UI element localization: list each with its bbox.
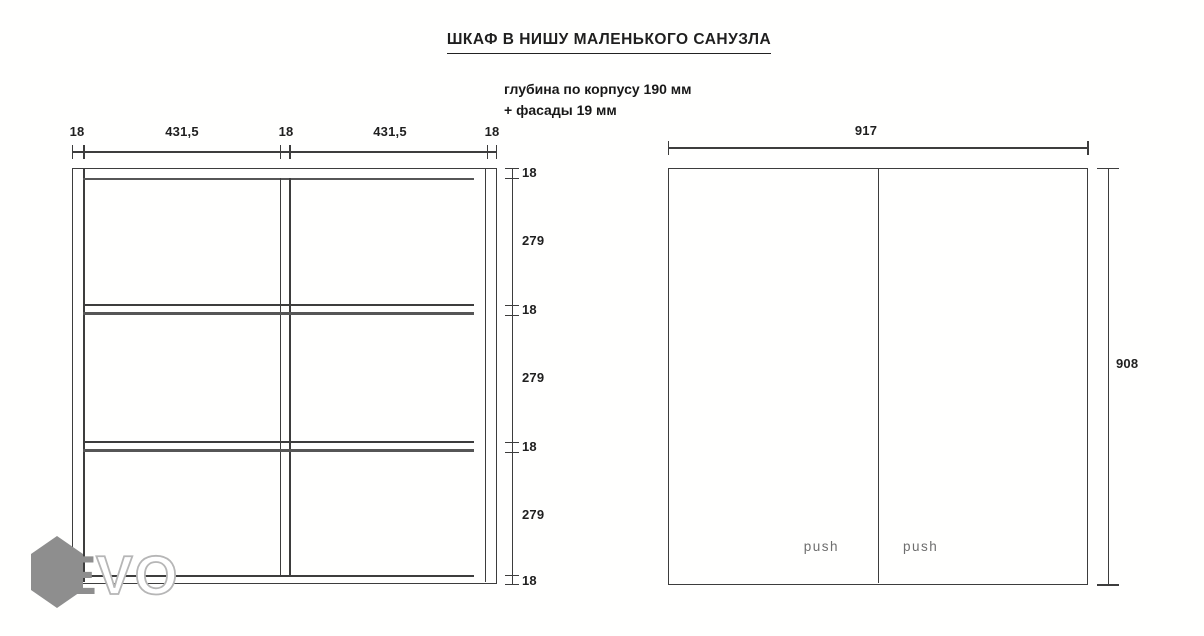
dim-label: 18 bbox=[522, 573, 537, 589]
dim-label: 431,5 bbox=[373, 124, 407, 140]
left-panel-inner-line bbox=[83, 169, 85, 582]
page-title-text: ШКАФ В НИШУ МАЛЕНЬКОГО САНУЗЛА bbox=[447, 31, 771, 54]
push-label-left: push bbox=[804, 540, 839, 554]
dim-tick bbox=[1087, 141, 1089, 155]
door-gap-line bbox=[878, 169, 880, 583]
dim-tick bbox=[505, 305, 519, 307]
depth-note-line2: + фасады 19 мм bbox=[504, 100, 692, 121]
center-divider-line bbox=[280, 178, 282, 576]
shelf-line bbox=[83, 449, 474, 452]
dim-label: 18 bbox=[70, 124, 85, 140]
dim-tick bbox=[505, 575, 519, 577]
dim-label: 431,5 bbox=[165, 124, 199, 140]
drawing-canvas: ШКАФ В НИШУ МАЛЕНЬКОГО САНУЗЛА глубина п… bbox=[0, 0, 1204, 636]
dim-label: 18 bbox=[522, 165, 537, 181]
dim-label: 279 bbox=[522, 370, 544, 386]
dim-tick bbox=[505, 442, 519, 444]
dim-tick bbox=[668, 141, 670, 155]
dim-label: 18 bbox=[522, 439, 537, 455]
depth-note-line1: глубина по корпусу 190 мм bbox=[504, 79, 692, 100]
dim-tick bbox=[72, 145, 74, 159]
dim-tick bbox=[505, 178, 519, 180]
shelf-line bbox=[83, 312, 474, 315]
shelf-line bbox=[83, 304, 474, 306]
dim-label-height: 908 bbox=[1116, 356, 1138, 372]
dim-tick bbox=[1097, 584, 1119, 586]
shelf-line bbox=[83, 441, 474, 443]
dim-tick bbox=[280, 145, 282, 159]
center-divider-line bbox=[289, 178, 291, 576]
dim-label: 18 bbox=[279, 124, 294, 140]
right-panel-inner-line bbox=[485, 169, 487, 582]
dimension-line bbox=[512, 168, 514, 585]
dim-label: 18 bbox=[485, 124, 500, 140]
push-label-right: push bbox=[903, 540, 938, 554]
logo-letters-vo: VO bbox=[96, 544, 179, 606]
cabinet-front: push push bbox=[668, 168, 1088, 585]
dimension-line bbox=[72, 151, 497, 153]
top-panel-inner-line bbox=[83, 178, 474, 181]
dim-tick bbox=[505, 168, 519, 170]
dim-tick bbox=[487, 145, 489, 159]
dim-tick bbox=[1097, 168, 1119, 170]
dim-tick bbox=[505, 584, 519, 586]
dim-label-width: 917 bbox=[855, 123, 877, 139]
logo-letter-e: E bbox=[60, 544, 97, 606]
dim-label: 18 bbox=[522, 302, 537, 318]
cabinet-carcass bbox=[72, 168, 497, 584]
depth-note: глубина по корпусу 190 мм + фасады 19 мм bbox=[504, 79, 692, 121]
evo-logo: E VO bbox=[20, 530, 195, 628]
dim-tick bbox=[505, 452, 519, 454]
dimension-line bbox=[1108, 168, 1110, 585]
dim-tick bbox=[505, 315, 519, 317]
dim-label: 279 bbox=[522, 507, 544, 523]
dim-tick bbox=[496, 145, 498, 159]
dimension-line bbox=[668, 147, 1088, 149]
page-title: ШКАФ В НИШУ МАЛЕНЬКОГО САНУЗЛА bbox=[409, 31, 809, 54]
dim-tick bbox=[83, 145, 85, 159]
dim-label: 279 bbox=[522, 233, 544, 249]
dim-tick bbox=[289, 145, 291, 159]
